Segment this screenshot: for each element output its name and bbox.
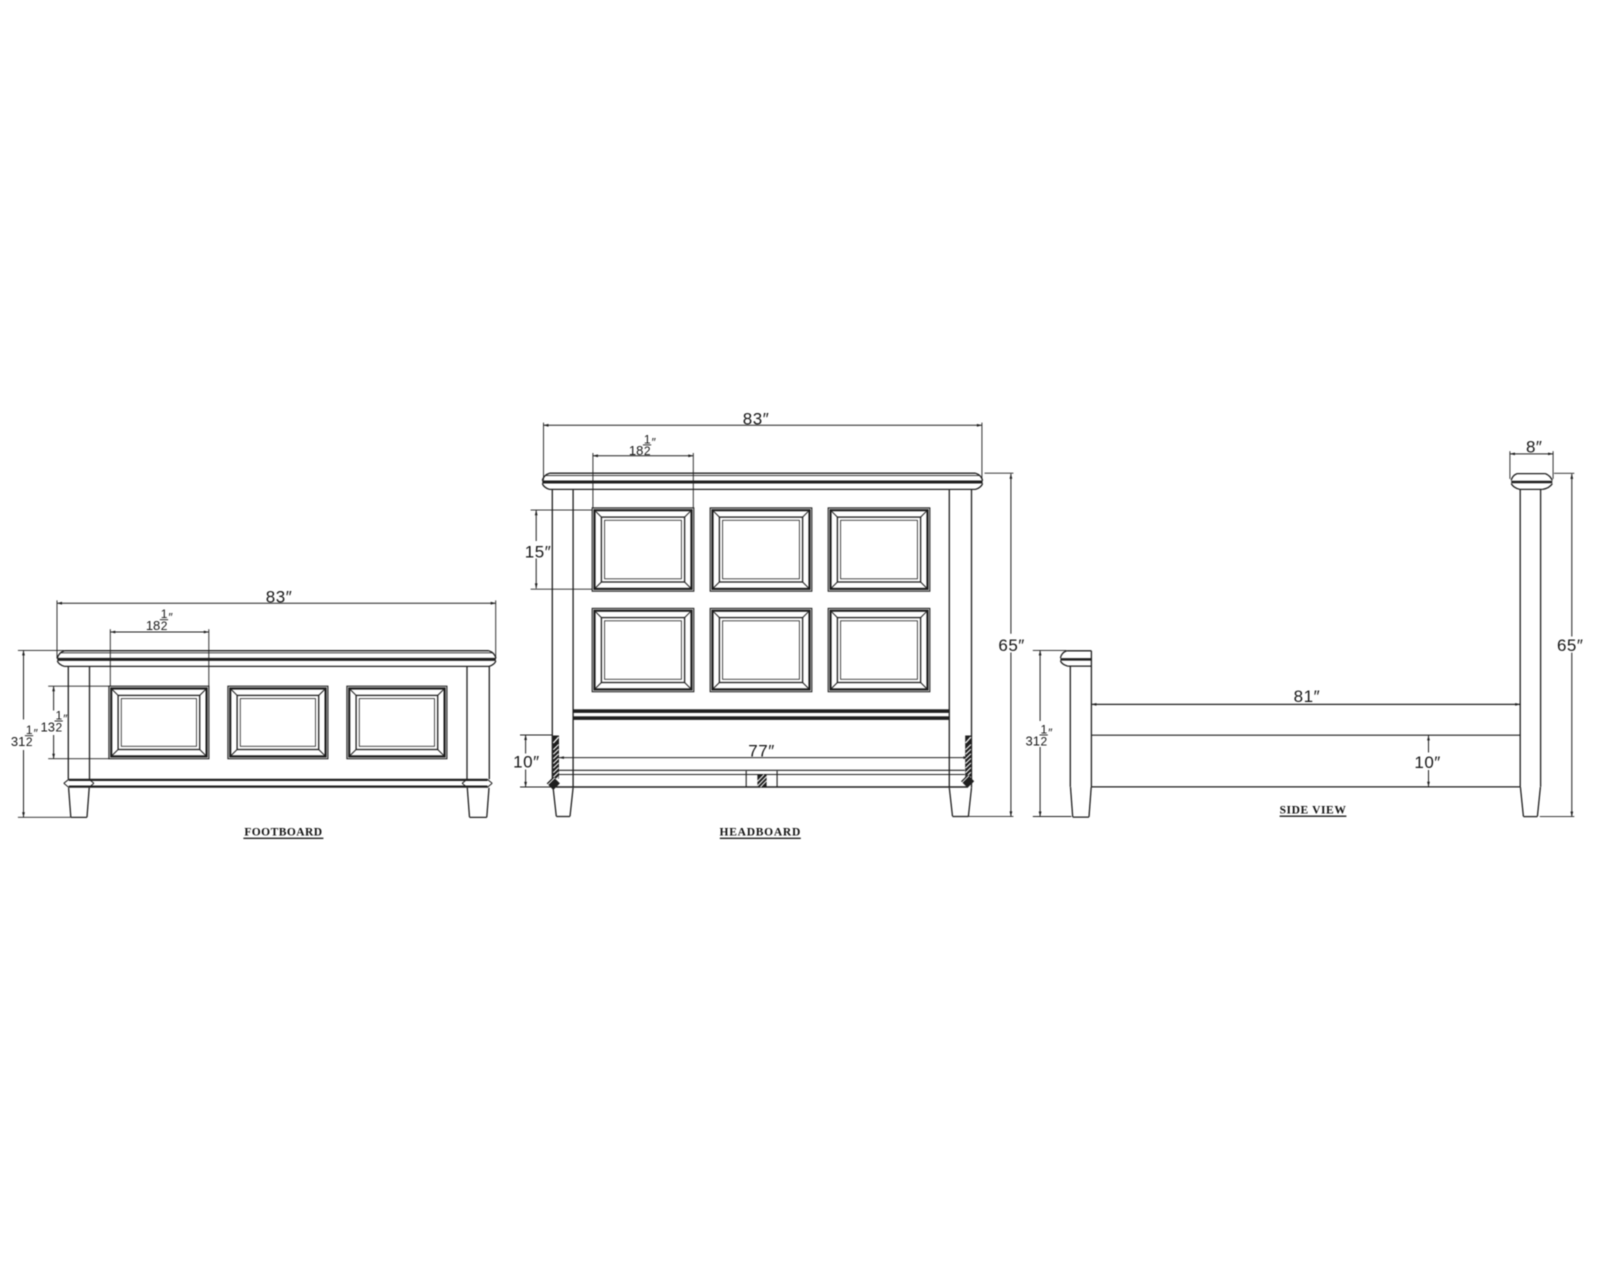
svg-text:83″: 83″ — [266, 588, 292, 607]
svg-text:10″: 10″ — [513, 752, 539, 771]
svg-text:HEADBOARD: HEADBOARD — [720, 827, 802, 839]
svg-text:″: ″ — [63, 712, 68, 726]
svg-text:65″: 65″ — [1557, 636, 1583, 655]
svg-text:31: 31 — [11, 734, 25, 749]
svg-text:83″: 83″ — [743, 410, 769, 429]
svg-text:10″: 10″ — [1414, 753, 1440, 772]
svg-text:77″: 77″ — [748, 742, 774, 761]
svg-text:15″: 15″ — [525, 542, 551, 561]
svg-text:″: ″ — [1048, 726, 1053, 740]
svg-text:1: 1 — [26, 723, 33, 737]
svg-text:8″: 8″ — [1526, 437, 1542, 456]
svg-text:18: 18 — [146, 618, 160, 633]
svg-text:13: 13 — [41, 719, 55, 734]
svg-text:65″: 65″ — [998, 636, 1024, 655]
svg-text:81″: 81″ — [1294, 687, 1320, 706]
svg-text:1: 1 — [161, 607, 168, 621]
svg-text:SIDE VIEW: SIDE VIEW — [1280, 805, 1347, 817]
svg-text:″: ″ — [34, 727, 39, 741]
svg-text:1: 1 — [644, 432, 651, 446]
svg-text:″: ″ — [652, 436, 657, 450]
svg-text:1: 1 — [1040, 722, 1047, 736]
svg-text:1: 1 — [55, 708, 62, 722]
svg-text:18: 18 — [629, 443, 643, 458]
svg-text:31: 31 — [1026, 733, 1040, 748]
svg-text:FOOTBOARD: FOOTBOARD — [244, 827, 322, 839]
